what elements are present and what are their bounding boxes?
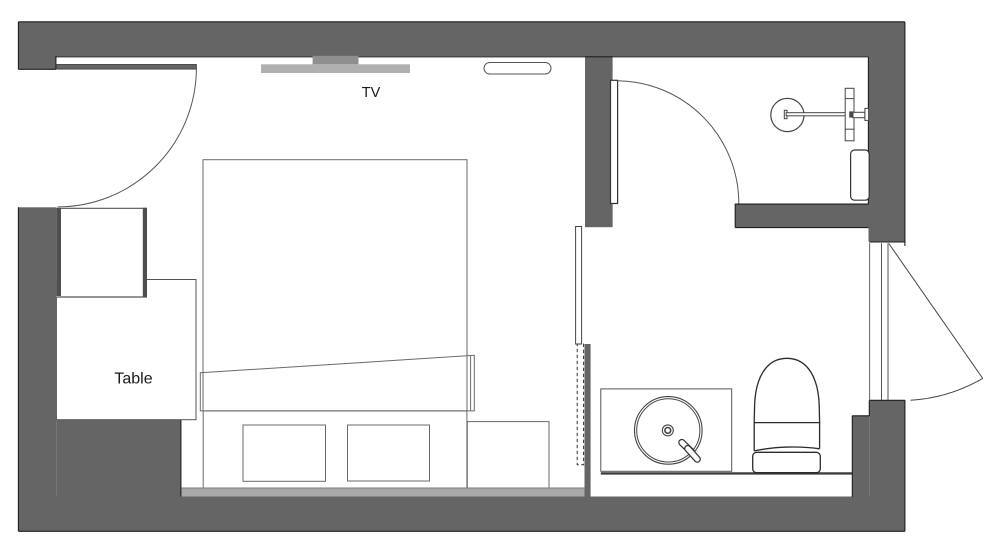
svg-text:TV: TV: [362, 85, 381, 101]
svg-text:Table: Table: [114, 371, 152, 388]
